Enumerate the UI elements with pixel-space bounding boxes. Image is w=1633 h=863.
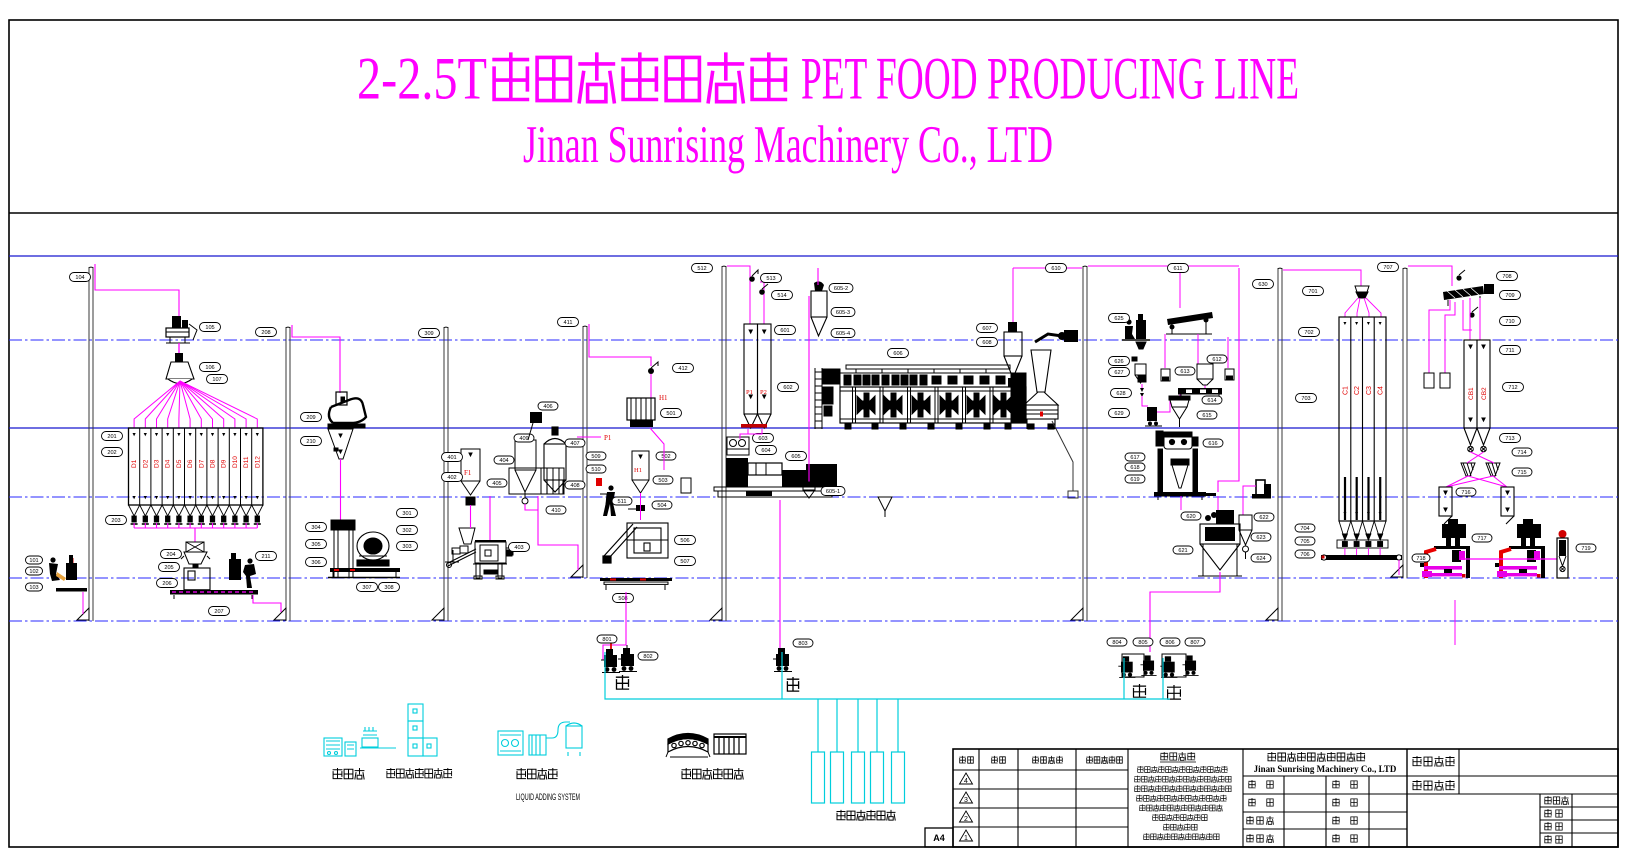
svg-text:D8: D8 — [210, 459, 217, 468]
svg-text:708: 708 — [1502, 274, 1511, 280]
svg-text:611: 611 — [1174, 266, 1183, 272]
svg-text:803: 803 — [798, 641, 807, 647]
svg-text:3: 3 — [964, 797, 968, 804]
svg-text:208: 208 — [261, 330, 270, 336]
svg-text:PET FOOD PRODUCING LINE: PET FOOD PRODUCING LINE — [801, 46, 1299, 112]
svg-text:A4: A4 — [933, 833, 945, 843]
svg-text:702: 702 — [1304, 330, 1313, 336]
svg-text:610: 610 — [1051, 266, 1060, 272]
svg-text:626: 626 — [1114, 359, 1123, 365]
svg-text:306: 306 — [311, 560, 320, 566]
svg-text:618: 618 — [1130, 465, 1139, 471]
svg-text:C1: C1 — [1342, 386, 1349, 395]
svg-text:D4: D4 — [165, 459, 172, 468]
svg-text:CB1: CB1 — [1468, 387, 1475, 400]
svg-text:711: 711 — [1506, 348, 1515, 354]
svg-text:605-2: 605-2 — [834, 286, 848, 292]
svg-text:407: 407 — [570, 441, 579, 447]
svg-text:605-3: 605-3 — [836, 310, 850, 316]
svg-text:405: 405 — [492, 481, 501, 487]
svg-text:103: 103 — [29, 585, 38, 591]
svg-text:205: 205 — [164, 565, 173, 571]
svg-text:410: 410 — [551, 508, 560, 514]
svg-text:408: 408 — [570, 483, 579, 489]
svg-text:625: 625 — [1114, 316, 1123, 322]
svg-text:305: 305 — [311, 542, 320, 548]
svg-text:1: 1 — [964, 835, 968, 842]
svg-text:706: 706 — [1300, 552, 1309, 558]
svg-text:D2: D2 — [142, 459, 149, 468]
svg-text:309: 309 — [424, 331, 433, 337]
svg-text:409: 409 — [519, 436, 528, 442]
svg-text:607: 607 — [982, 326, 991, 332]
svg-text:605: 605 — [791, 454, 800, 460]
svg-text:C4: C4 — [1378, 386, 1385, 395]
svg-text:801: 801 — [602, 637, 611, 643]
svg-text:605-1: 605-1 — [826, 489, 840, 495]
svg-text:401: 401 — [447, 455, 456, 461]
svg-text:Jinan Sunrising Machinery Co.,: Jinan Sunrising Machinery Co., LTD — [1254, 764, 1397, 774]
svg-text:715: 715 — [1517, 470, 1526, 476]
svg-text:201: 201 — [107, 434, 116, 440]
svg-text:203: 203 — [111, 518, 120, 524]
svg-text:718: 718 — [1416, 556, 1425, 562]
svg-text:605-4: 605-4 — [836, 331, 850, 337]
svg-text:617: 617 — [1130, 455, 1139, 461]
svg-text:D12: D12 — [254, 456, 261, 468]
svg-text:804: 804 — [1112, 640, 1121, 646]
svg-text:302: 302 — [402, 528, 411, 534]
svg-text:P1: P1 — [604, 434, 612, 442]
svg-text:402: 402 — [447, 475, 456, 481]
svg-text:627: 627 — [1114, 370, 1123, 376]
svg-text:105: 105 — [205, 325, 214, 331]
svg-text:D7: D7 — [198, 459, 205, 468]
svg-text:620: 620 — [1186, 514, 1195, 520]
svg-text:H1: H1 — [634, 467, 642, 474]
svg-text:406: 406 — [543, 404, 552, 410]
svg-text:805: 805 — [1138, 640, 1147, 646]
svg-text:615: 615 — [1202, 413, 1211, 419]
svg-text:712: 712 — [1508, 385, 1517, 391]
svg-text:608: 608 — [982, 340, 991, 346]
svg-text:807: 807 — [1190, 640, 1199, 646]
svg-text:502: 502 — [661, 454, 670, 460]
svg-text:501: 501 — [666, 411, 675, 417]
svg-text:101: 101 — [29, 558, 38, 564]
svg-text:622: 622 — [1259, 515, 1268, 521]
svg-text:701: 701 — [1308, 289, 1317, 295]
svg-text:716: 716 — [1461, 490, 1470, 496]
svg-text:619: 619 — [1130, 477, 1139, 483]
svg-text:403: 403 — [514, 545, 523, 551]
svg-text:613: 613 — [1180, 369, 1189, 375]
svg-text:LIQUID ADDING SYSTEM: LIQUID ADDING SYSTEM — [516, 792, 580, 803]
svg-text:713: 713 — [1505, 436, 1514, 442]
svg-text:D10: D10 — [232, 456, 239, 468]
svg-text:614: 614 — [1207, 398, 1216, 404]
svg-text:202: 202 — [107, 450, 116, 456]
svg-text:209: 209 — [306, 415, 315, 421]
svg-text:630: 630 — [1258, 282, 1267, 288]
svg-text:629: 629 — [1114, 411, 1123, 417]
svg-text:D6: D6 — [187, 459, 194, 468]
svg-text:714: 714 — [1517, 450, 1526, 456]
svg-text:510: 510 — [591, 467, 600, 473]
svg-text:704: 704 — [1300, 526, 1309, 532]
svg-text:211: 211 — [262, 554, 271, 560]
svg-text:616: 616 — [1208, 441, 1217, 447]
svg-text:303: 303 — [402, 544, 411, 550]
svg-text:210: 210 — [306, 439, 315, 445]
svg-text:513: 513 — [766, 276, 775, 282]
svg-text:717: 717 — [1477, 536, 1486, 542]
svg-text:204: 204 — [166, 552, 175, 558]
svg-text:719: 719 — [1581, 546, 1590, 552]
svg-text:2-2.5T: 2-2.5T — [357, 46, 487, 112]
svg-text:D11: D11 — [243, 456, 250, 468]
svg-text:512: 512 — [697, 266, 706, 272]
svg-text:624: 624 — [1256, 556, 1265, 562]
svg-text:509: 509 — [591, 454, 600, 460]
svg-text:606: 606 — [893, 351, 902, 357]
svg-text:506: 506 — [680, 538, 689, 544]
svg-text:703: 703 — [1301, 396, 1310, 402]
svg-text:P1: P1 — [746, 389, 753, 396]
svg-text:507: 507 — [680, 559, 689, 565]
svg-text:602: 602 — [783, 385, 792, 391]
svg-text:623: 623 — [1256, 535, 1265, 541]
svg-text:308: 308 — [384, 585, 393, 591]
svg-text:102: 102 — [29, 569, 38, 575]
svg-text:412: 412 — [678, 366, 687, 372]
svg-text:709: 709 — [1505, 293, 1514, 299]
svg-text:4: 4 — [964, 778, 968, 785]
svg-text:612: 612 — [1212, 357, 1221, 363]
svg-text:806: 806 — [1165, 640, 1174, 646]
svg-text:603: 603 — [758, 436, 767, 442]
svg-text:F1: F1 — [464, 469, 472, 477]
svg-text:P2: P2 — [760, 389, 767, 396]
svg-text:C2: C2 — [1354, 386, 1361, 395]
svg-text:707: 707 — [1383, 265, 1392, 271]
svg-text:307: 307 — [362, 585, 371, 591]
svg-text:301: 301 — [402, 511, 411, 517]
svg-text:106: 106 — [205, 365, 214, 371]
svg-text:802: 802 — [643, 654, 652, 660]
svg-text:C3: C3 — [1366, 386, 1373, 395]
svg-text:2: 2 — [964, 816, 968, 823]
svg-text:D9: D9 — [221, 459, 228, 468]
svg-text:628: 628 — [1116, 391, 1125, 397]
svg-text:411: 411 — [564, 320, 573, 326]
svg-text:107: 107 — [212, 377, 221, 383]
svg-text:705: 705 — [1300, 539, 1309, 545]
svg-text:CB2: CB2 — [1481, 387, 1488, 400]
svg-text:710: 710 — [1505, 319, 1514, 325]
svg-text:601: 601 — [780, 328, 789, 334]
svg-text:D5: D5 — [176, 459, 183, 468]
svg-text:511: 511 — [618, 499, 627, 505]
svg-text:D1: D1 — [131, 459, 138, 468]
svg-text:Jinan Sunrising Machinery Co.,: Jinan Sunrising Machinery Co., LTD — [523, 116, 1053, 174]
svg-text:H1: H1 — [659, 394, 668, 402]
svg-text:404: 404 — [499, 458, 508, 464]
svg-text:504: 504 — [657, 503, 666, 509]
svg-text:621: 621 — [1178, 548, 1187, 554]
svg-text:304: 304 — [311, 525, 320, 531]
svg-text:503: 503 — [658, 478, 667, 484]
svg-text:514: 514 — [777, 293, 786, 299]
svg-text:104: 104 — [75, 275, 84, 281]
svg-text:207: 207 — [214, 609, 223, 615]
svg-text:D3: D3 — [154, 459, 161, 468]
svg-text:206: 206 — [162, 581, 171, 587]
svg-text:604: 604 — [761, 448, 770, 454]
